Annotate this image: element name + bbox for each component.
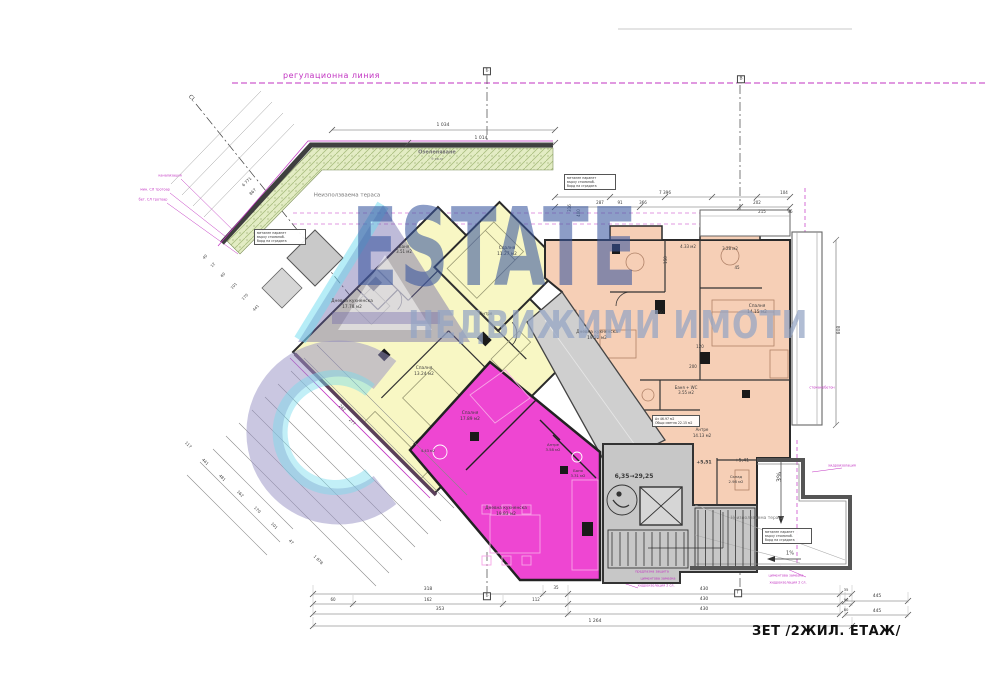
- floor-plan-drawing: [0, 0, 990, 700]
- plan-label: 14.13 м2: [693, 434, 711, 438]
- plan-label: 7 396: [659, 191, 671, 195]
- plan-label: стоманобетон: [809, 386, 834, 389]
- plan-label: 430: [700, 598, 709, 603]
- plan-label: 200: [689, 365, 697, 369]
- note-box: метален парапетвърху стоманоб.борд на сг…: [762, 528, 812, 544]
- plan-label: Спалня: [462, 412, 479, 416]
- plan-label: 366: [639, 201, 647, 205]
- plan-label: 430: [700, 608, 709, 613]
- plan-label: хидроизолация: [828, 464, 856, 467]
- plan-label: 19.83 м2: [496, 513, 516, 517]
- plan-label: 90: [844, 598, 849, 602]
- plan-label: циментова замазка: [640, 577, 675, 580]
- plan-label: Б: [483, 67, 491, 75]
- plan-label: 3.55 м2: [678, 391, 694, 395]
- plan-label: Дневна кухненска: [485, 507, 527, 511]
- plan-label: 3.31 м2: [571, 474, 586, 478]
- plan-label: В: [737, 75, 745, 83]
- plan-label: Неизползваема тераса: [730, 517, 783, 521]
- plan-label: 6,35→29,25: [615, 474, 654, 480]
- plan-label: 150: [664, 256, 668, 264]
- plan-label: Спалня: [416, 367, 433, 371]
- plan-label: 4.43 м2: [421, 450, 435, 454]
- plan-label: хидроизолация 2 сл.: [769, 581, 806, 584]
- note-box: метален парапетвърху стоманоб.борд на сг…: [254, 229, 306, 245]
- drawing-title: ЗЕТ /2ЖИЛ. ЕТАЖ/: [752, 624, 901, 639]
- plan-label: канализация: [158, 174, 181, 177]
- plan-label: 60: [330, 598, 335, 602]
- plan-label: 112: [532, 598, 540, 602]
- plan-label: 13.24 м2: [414, 373, 434, 377]
- plan-label: +5,41: [735, 460, 749, 465]
- plan-label: 1%: [786, 552, 794, 557]
- plan-label: 17.89 м2: [460, 418, 480, 422]
- plan-label: Антре: [696, 428, 709, 432]
- plan-label: циментова замазка: [768, 574, 803, 577]
- watermark-subtitle: НЕДВИЖИМИ ИМОТИ: [408, 303, 808, 347]
- plan-label: 1 014: [475, 137, 488, 142]
- plan-label: +5,51: [696, 462, 711, 467]
- plan-label: 80: [844, 608, 849, 612]
- plan-label: 9 кв.м: [431, 158, 443, 162]
- plan-label: 202: [753, 201, 761, 205]
- plan-label: Б: [483, 592, 491, 600]
- plan-label: бет. СЛ тротоар: [139, 198, 168, 201]
- plan-label: 1 034: [437, 124, 450, 129]
- plan-label: 430: [700, 588, 709, 593]
- plan-label: Г: [734, 589, 742, 597]
- regulation-line-label: регулационна линия: [283, 71, 380, 80]
- plan-label: 215: [758, 210, 766, 214]
- plan-label: 3.28 м2: [722, 247, 738, 251]
- plan-label: 2.98 м2: [729, 480, 744, 484]
- plan-label: 318: [424, 588, 433, 593]
- note-box: Аз 46.97 м2Общо светла 22.15 м2: [652, 415, 700, 427]
- plan-label: 1 264: [589, 620, 602, 625]
- plan-label: 45: [734, 266, 739, 270]
- plan-label: 353: [436, 608, 445, 613]
- plan-label: 3.58 м2: [546, 448, 561, 452]
- plan-label: 104: [780, 191, 788, 195]
- floor-plan-page: регулационна линия ЗЕТ /2ЖИЛ. ЕТАЖ/ 1 03…: [0, 0, 990, 700]
- plan-label: Озеленяване: [418, 151, 456, 156]
- plan-label: предпазна защита: [635, 570, 669, 573]
- plan-label: 808: [838, 326, 843, 335]
- plan-label: 445: [873, 610, 882, 615]
- plan-label: 162: [424, 598, 432, 602]
- plan-label: 35: [553, 586, 558, 590]
- plan-label: 4.33 м2: [680, 245, 696, 249]
- plan-label: хидроизолация 2 сл.: [637, 584, 674, 587]
- plan-label: 96: [787, 210, 792, 214]
- watermark-brand: ESTATE: [352, 186, 639, 311]
- plan-label: 35: [844, 588, 849, 592]
- plan-label: мин. СЛ тротоар: [140, 188, 170, 191]
- plan-label: 3%: [776, 472, 783, 482]
- plan-label: 445: [873, 595, 882, 600]
